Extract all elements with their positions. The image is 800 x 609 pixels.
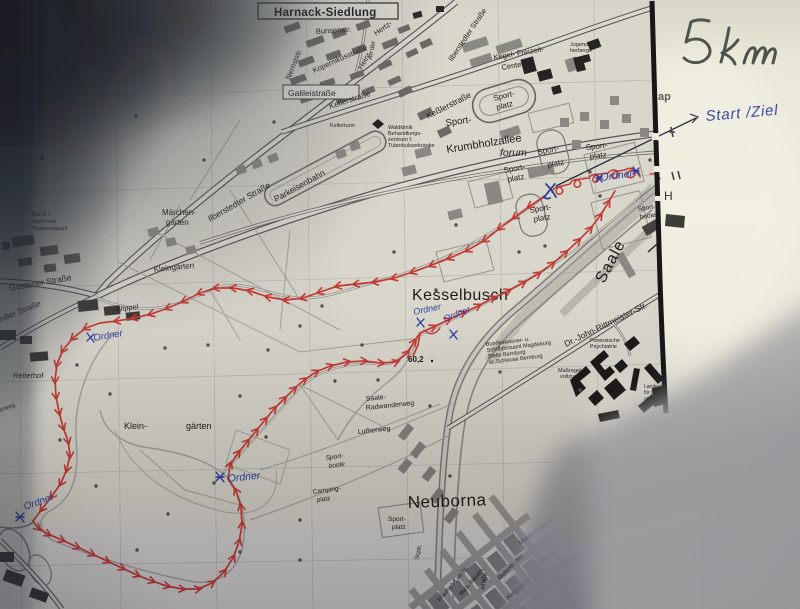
svg-text:forum: forum [500, 147, 527, 159]
svg-text:Kesselbusch: Kesselbusch [412, 287, 508, 304]
svg-text:ap: ap [658, 91, 671, 103]
svg-text:H: H [664, 189, 673, 203]
svg-text:Psychiatrie: Psychiatrie [590, 344, 617, 350]
svg-text:platz: platz [589, 150, 607, 161]
svg-text:herberge: herberge [570, 48, 592, 54]
